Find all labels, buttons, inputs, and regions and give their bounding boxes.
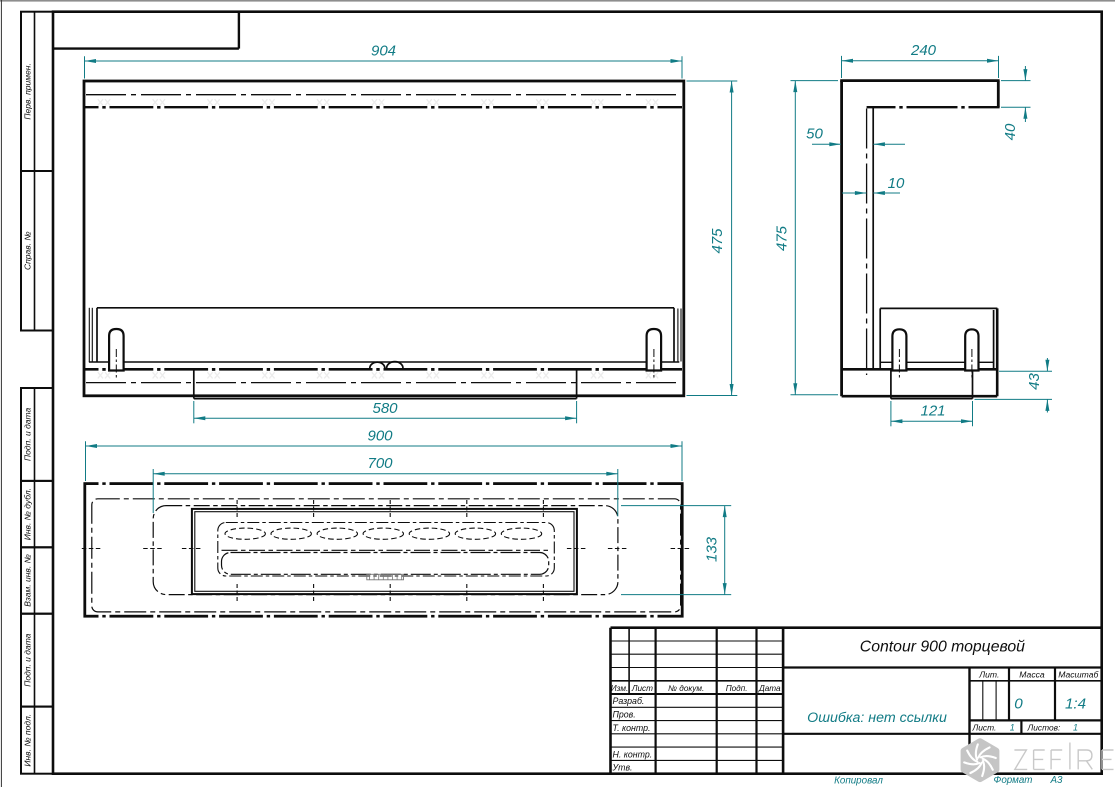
svg-text:Пров.: Пров. [613,710,636,720]
svg-text:Подп. и дата: Подп. и дата [23,633,33,686]
svg-text:Дата: Дата [758,684,781,693]
svg-text:Формат: Формат [994,775,1033,786]
svg-text:Копировал: Копировал [834,776,883,787]
svg-text:121: 121 [920,403,945,420]
svg-text:Лист.: Лист. [972,722,997,732]
svg-text:43: 43 [1026,373,1043,390]
svg-text:Лит.: Лит. [978,670,999,680]
svg-text:Масса: Масса [1019,670,1045,680]
svg-text:10: 10 [888,175,905,192]
svg-text:Изм.: Изм. [611,684,628,693]
svg-text:Contour 900 торцевой: Contour 900 торцевой [860,639,1025,656]
svg-text:Перв. примен.: Перв. примен. [23,63,33,120]
svg-text:А3: А3 [1050,775,1064,786]
svg-text:475: 475 [709,228,726,254]
svg-text:133: 133 [704,536,721,562]
svg-text:1:4: 1:4 [1065,696,1086,713]
svg-text:580: 580 [372,400,398,417]
svg-text:Взам. инв. №: Взам. инв. № [23,554,33,607]
svg-text:Т. контр.: Т. контр. [613,723,651,733]
svg-text:Инв. № дубл.: Инв. № дубл. [23,488,33,540]
svg-text:Подп.: Подп. [726,684,748,693]
svg-text:900: 900 [367,428,393,445]
svg-text:Масштаб: Масштаб [1058,670,1099,680]
svg-text:0: 0 [1014,696,1023,713]
svg-text:Инв. № подл.: Инв. № подл. [23,714,33,767]
svg-text:Лист: Лист [631,684,653,693]
svg-text:240: 240 [910,42,937,59]
svg-text:50: 50 [806,126,823,143]
svg-text:Утв.: Утв. [612,763,633,773]
svg-text:№ докум.: № докум. [668,684,704,693]
svg-text:1: 1 [1073,722,1078,732]
svg-text:Разраб.: Разраб. [613,696,645,706]
svg-text:Н. контр.: Н. контр. [613,749,653,759]
svg-text:904: 904 [371,43,396,60]
svg-text:700: 700 [367,455,393,472]
svg-text:Листов:: Листов: [1027,722,1061,732]
svg-text:1: 1 [1010,722,1015,732]
svg-text:40: 40 [1002,123,1019,140]
svg-text:Справ. №: Справ. № [23,231,33,270]
svg-text:Ошибка: нет ссылки: Ошибка: нет ссылки [807,710,947,726]
svg-text:Подп. и дата: Подп. и дата [23,408,33,461]
svg-text:475: 475 [774,225,791,251]
